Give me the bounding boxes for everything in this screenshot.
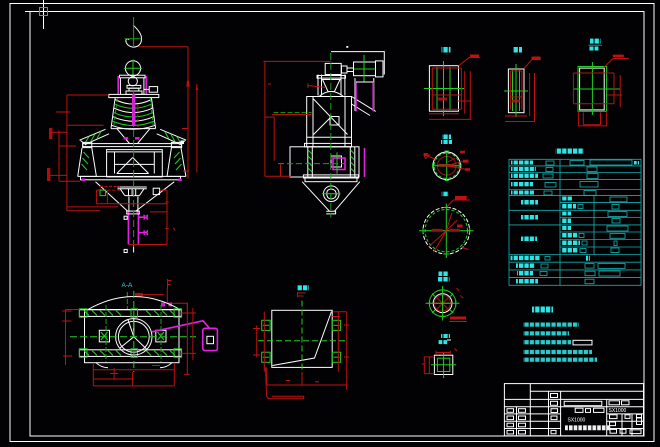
svg-text:SX1000: SX1000 bbox=[568, 417, 586, 423]
svg-text:A-A: A-A bbox=[122, 282, 134, 289]
svg-text:SX1000: SX1000 bbox=[609, 408, 627, 414]
